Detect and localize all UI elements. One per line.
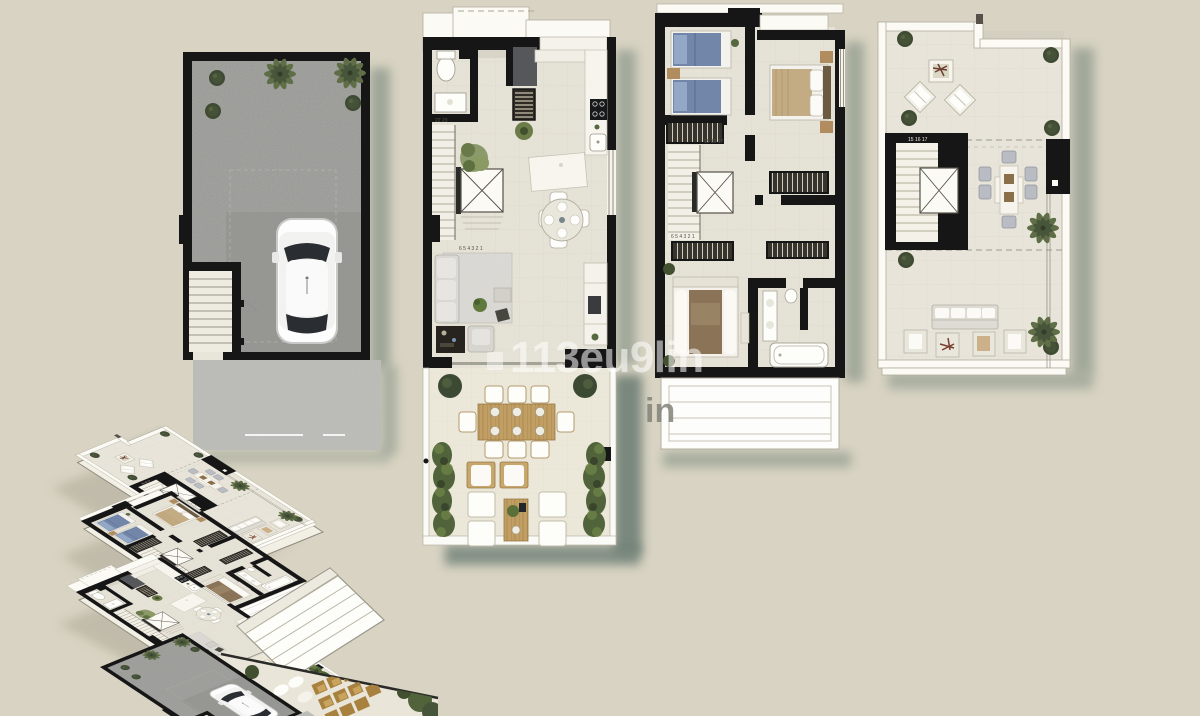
svg-text:113eu9lin: 113eu9lin xyxy=(510,333,704,382)
svg-text:in: in xyxy=(645,392,675,430)
